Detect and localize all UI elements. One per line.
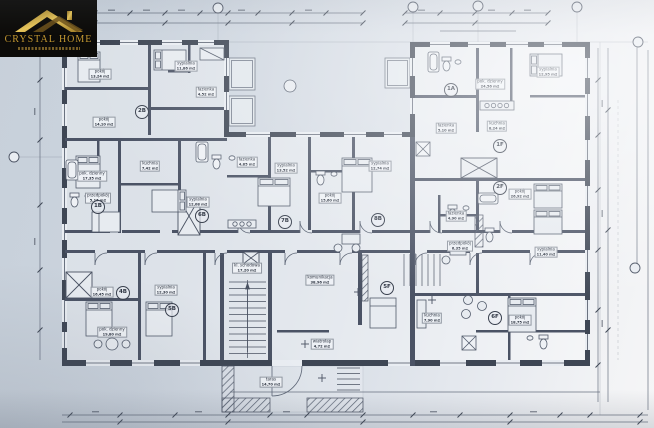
floor-plan-photo: pokój13,24 m2sypialnia11,86 m2łazienka4,… <box>0 0 654 428</box>
gold-roof-icon <box>13 8 85 34</box>
floor-plan-drawing <box>0 0 654 428</box>
crystal-home-logo: CRYSTAL HOME <box>0 0 97 57</box>
logo-tagline-bar <box>18 47 80 50</box>
brand-name: CRYSTAL HOME <box>5 35 93 45</box>
